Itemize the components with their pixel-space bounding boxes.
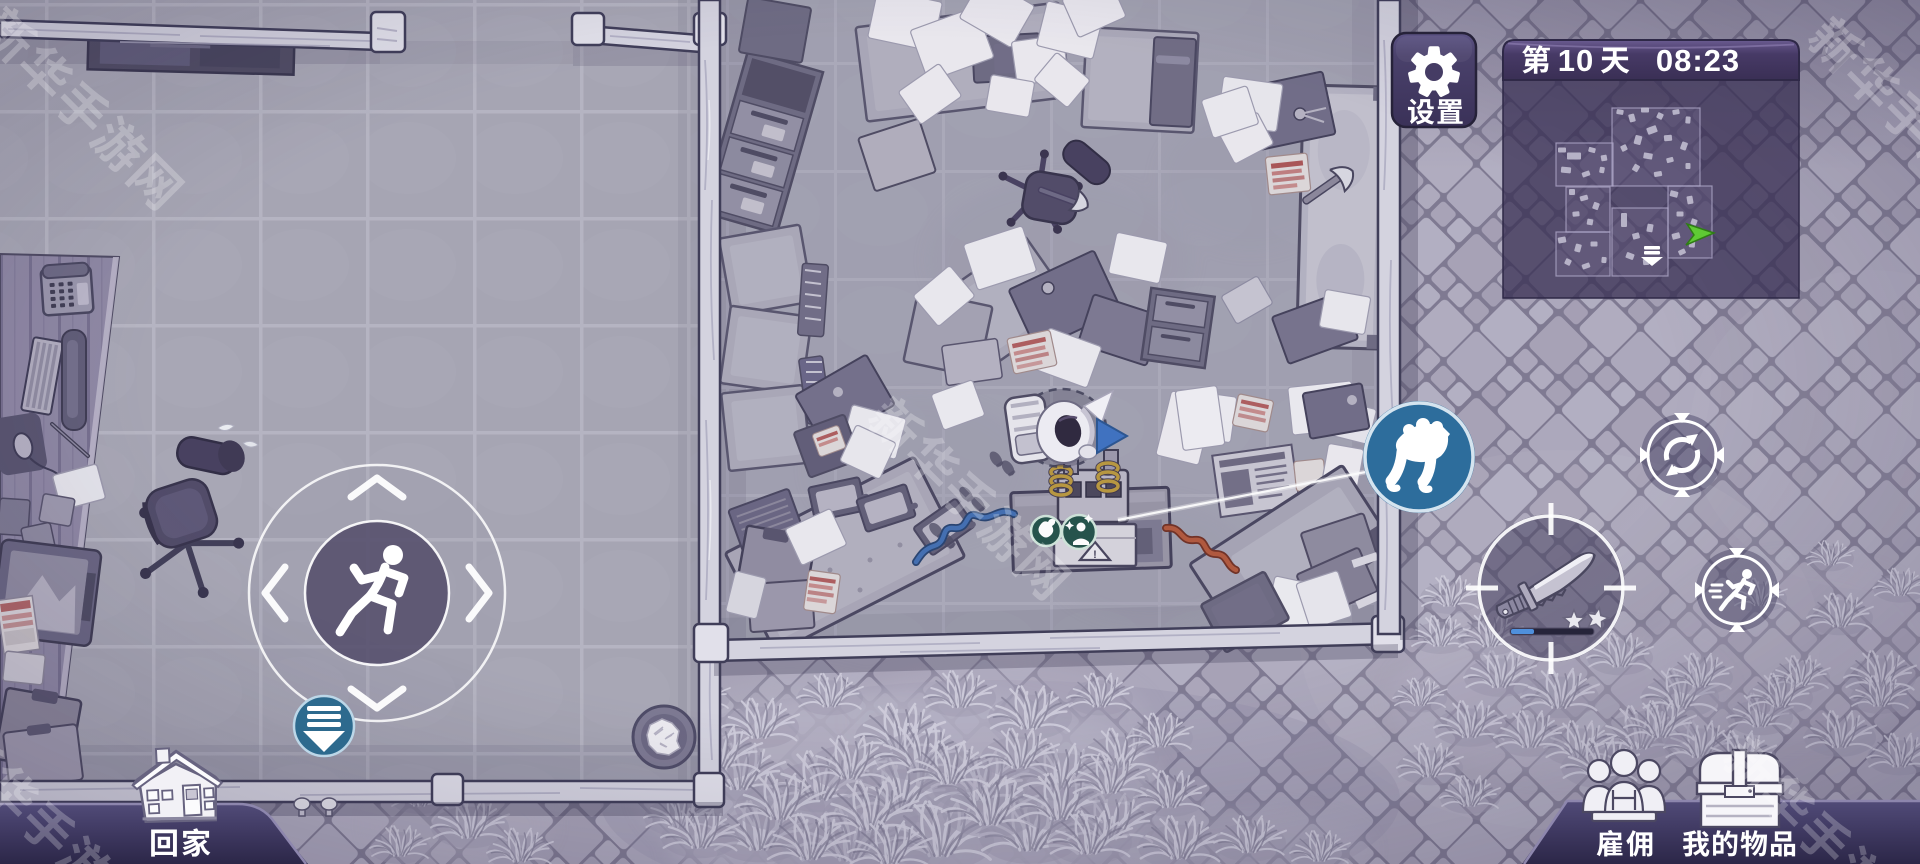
svg-text:08:23: 08:23 — [1656, 43, 1740, 78]
svg-text:10: 10 — [1558, 43, 1594, 78]
